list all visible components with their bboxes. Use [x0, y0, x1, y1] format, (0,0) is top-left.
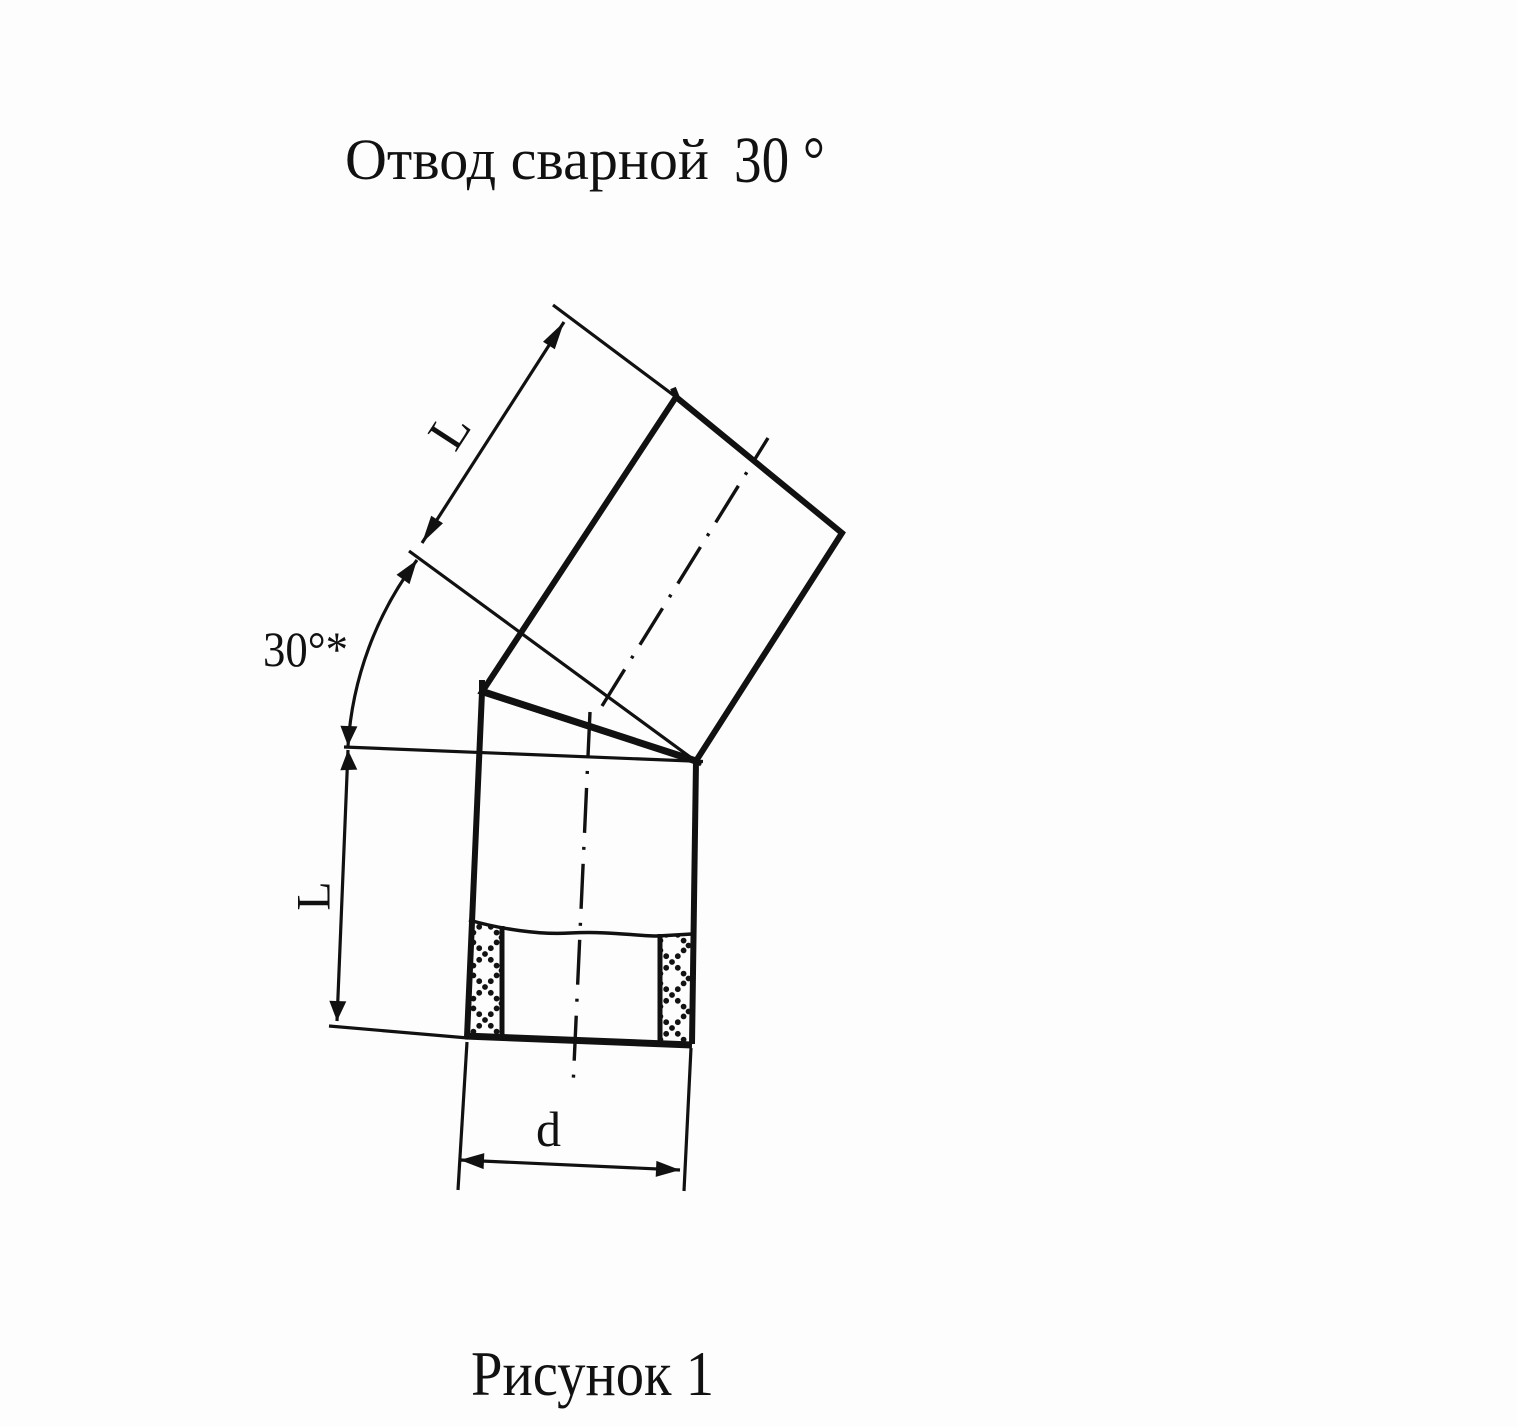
- svg-text:d: d: [536, 1101, 561, 1157]
- svg-text:L: L: [417, 402, 482, 460]
- svg-text:L: L: [288, 881, 341, 910]
- svg-text:30°*: 30°*: [263, 621, 348, 677]
- svg-text:Отвод сварной30 °: Отвод сварной30 °: [345, 124, 825, 197]
- svg-text:Рисунок 1: Рисунок 1: [471, 1339, 714, 1409]
